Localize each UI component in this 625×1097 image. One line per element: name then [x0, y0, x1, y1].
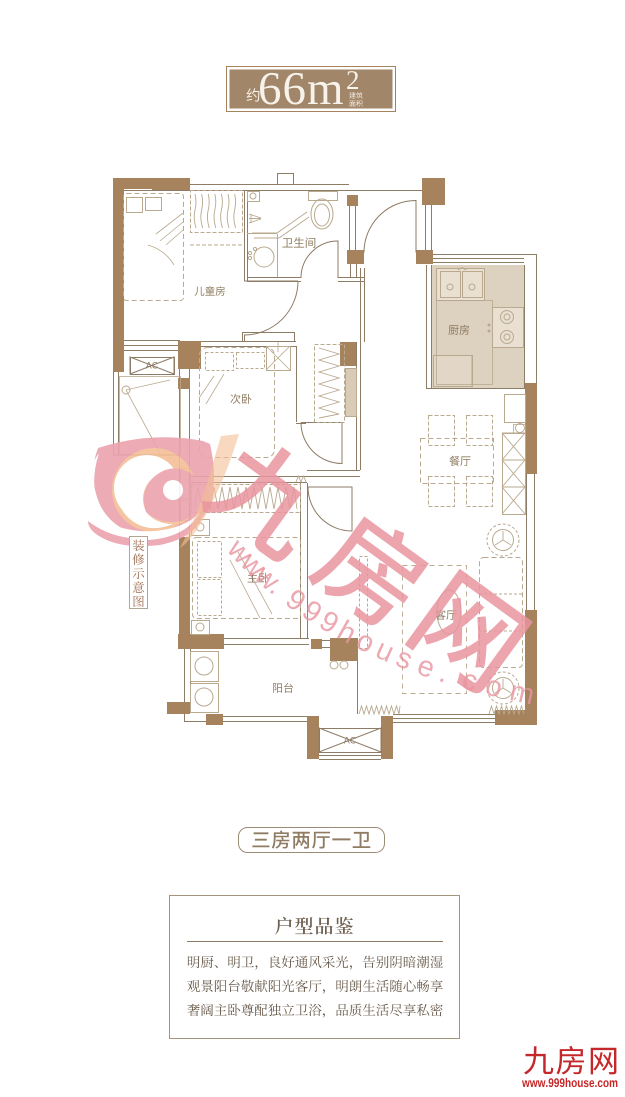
svg-text:AC: AC: [344, 736, 357, 746]
svg-text:AC: AC: [146, 361, 159, 371]
